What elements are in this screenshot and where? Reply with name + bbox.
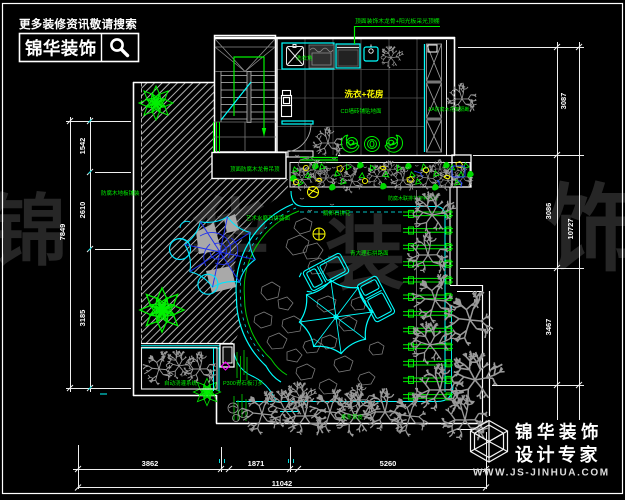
svg-text:自动浇灌系统: 自动浇灌系统 bbox=[164, 379, 198, 387]
svg-text:更多装修资讯敬请搜索: 更多装修资讯敬请搜索 bbox=[19, 17, 137, 31]
svg-text:顶面装饰木龙骨+阳光板采光顶棚: 顶面装饰木龙骨+阳光板采光顶棚 bbox=[355, 17, 440, 25]
svg-text:鹅卵石拼花: 鹅卵石拼花 bbox=[323, 209, 351, 217]
svg-text:3467: 3467 bbox=[544, 319, 553, 336]
svg-text:11042: 11042 bbox=[272, 479, 292, 488]
svg-text:锦华装饰: 锦华装饰 bbox=[25, 39, 97, 59]
svg-text:3862: 3862 bbox=[142, 459, 159, 468]
svg-text:7849: 7849 bbox=[58, 224, 67, 241]
svg-text:青大理石拼路面: 青大理石拼路面 bbox=[350, 249, 389, 257]
svg-text:艺术水磨石拼路面: 艺术水磨石拼路面 bbox=[246, 214, 291, 222]
svg-text:CD墙砖铺贴地面: CD墙砖铺贴地面 bbox=[341, 107, 382, 115]
svg-text:锦华装饰: 锦华装饰 bbox=[515, 422, 603, 442]
svg-text:锦: 锦 bbox=[0, 187, 67, 275]
svg-text:防腐木地板铺装: 防腐木地板铺装 bbox=[101, 189, 140, 197]
svg-text:3087: 3087 bbox=[559, 93, 568, 110]
svg-text:3185: 3185 bbox=[78, 310, 87, 327]
svg-text:10727: 10727 bbox=[566, 219, 575, 240]
svg-text:洗衣+花房: 洗衣+花房 bbox=[345, 89, 384, 99]
svg-text:设计专家: 设计专家 bbox=[515, 444, 601, 465]
svg-text:5260: 5260 bbox=[380, 459, 397, 468]
svg-text:麦冬草皮: 麦冬草皮 bbox=[341, 413, 364, 421]
svg-text:WWW.JS-JINHUA.COM: WWW.JS-JINHUA.COM bbox=[473, 468, 610, 479]
svg-text:P300青石板汀步: P300青石板汀步 bbox=[223, 379, 264, 387]
svg-text:洗衣角: 洗衣角 bbox=[296, 54, 313, 62]
svg-text:2610: 2610 bbox=[78, 202, 87, 219]
svg-text:AA防腐木花架隔断: AA防腐木花架隔断 bbox=[428, 106, 470, 113]
svg-text:1871: 1871 bbox=[248, 459, 265, 468]
svg-text:3086: 3086 bbox=[544, 203, 553, 220]
svg-text:顶面防腐木龙骨吊顶: 顶面防腐木龙骨吊顶 bbox=[230, 165, 280, 173]
svg-text:1542: 1542 bbox=[78, 138, 87, 155]
